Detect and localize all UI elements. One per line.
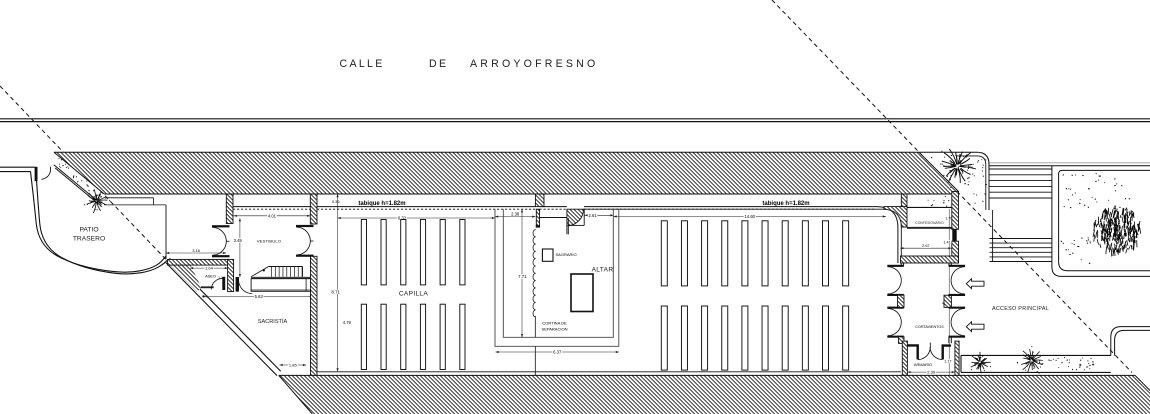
svg-text:ALTAR: ALTAR (592, 267, 614, 274)
svg-text:4.79: 4.79 (343, 320, 352, 325)
svg-text:CORTAVIENTOS: CORTAVIENTOS (915, 325, 944, 329)
svg-text:1.85: 1.85 (289, 363, 298, 368)
svg-text:7.71: 7.71 (518, 274, 527, 279)
svg-text:4.01: 4.01 (268, 213, 277, 218)
svg-text:1.17: 1.17 (218, 276, 225, 280)
svg-text:DE: DE (429, 58, 448, 70)
svg-text:ARMARIO: ARMARIO (914, 362, 932, 367)
svg-text:2.38: 2.38 (511, 211, 520, 216)
svg-text:ARROYOFRESNO: ARROYOFRESNO (470, 58, 598, 70)
svg-text:CONFESIONARIO: CONFESIONARIO (915, 221, 944, 225)
svg-text:8.71: 8.71 (331, 289, 340, 294)
svg-text:SACRISTÍA: SACRISTÍA (258, 318, 288, 325)
svg-text:SAGRARIO: SAGRARIO (556, 252, 577, 257)
svg-text:CORTINA DE: CORTINA DE (542, 321, 567, 326)
svg-text:CALLE: CALLE (340, 58, 385, 70)
svg-text:PATIO: PATIO (79, 227, 98, 234)
svg-text:2.39: 2.39 (927, 370, 936, 375)
svg-text:2.67: 2.67 (922, 243, 931, 248)
svg-text:3.49: 3.49 (234, 238, 243, 243)
svg-text:ASEO: ASEO (205, 273, 216, 278)
svg-text:14.60: 14.60 (745, 214, 756, 219)
svg-text:tabique h=1.82m: tabique h=1.82m (358, 201, 405, 207)
svg-text:ACCESO PRINCIPAL: ACCESO PRINCIPAL (992, 306, 1049, 312)
svg-text:1.17: 1.17 (944, 360, 951, 364)
svg-text:5.63: 5.63 (255, 294, 264, 299)
svg-text:SEPARACION: SEPARACION (542, 327, 568, 332)
svg-text:6.37: 6.37 (553, 350, 562, 355)
svg-text:tabique h=1.82m: tabique h=1.82m (762, 201, 809, 207)
svg-text:0.36: 0.36 (332, 199, 340, 204)
svg-text:TRASERO: TRASERO (73, 236, 105, 243)
svg-text:VESTIBULO: VESTIBULO (257, 238, 281, 243)
svg-text:CAPILLA: CAPILLA (399, 291, 429, 298)
svg-text:1.04: 1.04 (205, 265, 214, 270)
svg-text:1.41: 1.41 (943, 241, 950, 245)
svg-text:2.61: 2.61 (589, 213, 598, 218)
svg-text:3.16: 3.16 (192, 248, 201, 253)
